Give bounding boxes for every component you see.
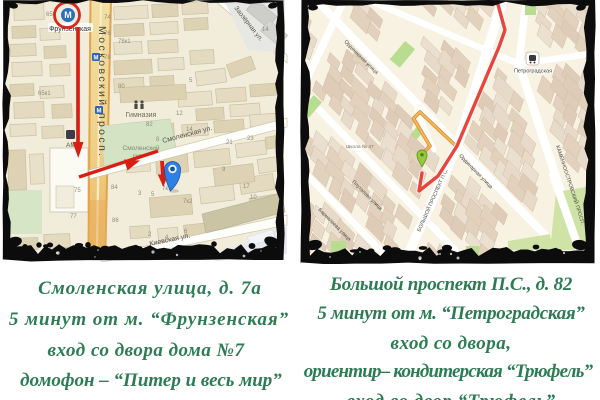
svg-text:86: 86: [112, 218, 119, 224]
svg-text:Московский просп.: Московский просп.: [96, 26, 108, 158]
svg-text:7к2: 7к2: [183, 199, 193, 205]
svg-text:12: 12: [176, 111, 183, 117]
svg-text:10: 10: [250, 195, 257, 201]
svg-text:Гимназия: Гимназия: [126, 112, 157, 119]
svg-text:74: 74: [104, 15, 111, 21]
svg-text:76: 76: [104, 31, 111, 37]
svg-text:Школа № 47: Школа № 47: [346, 144, 374, 150]
svg-text:80: 80: [118, 84, 125, 90]
svg-text:65к1: 65к1: [38, 91, 51, 97]
svg-text:78: 78: [104, 55, 111, 61]
svg-text:82: 82: [146, 122, 153, 128]
svg-text:84: 84: [111, 185, 118, 191]
svg-text:77: 77: [70, 214, 77, 220]
svg-text:14: 14: [186, 127, 193, 133]
svg-text:17: 17: [243, 184, 250, 190]
svg-text:21: 21: [226, 140, 233, 146]
svg-text:М: М: [64, 10, 72, 20]
svg-text:23: 23: [247, 136, 254, 142]
svg-text:78к1: 78к1: [118, 39, 131, 45]
svg-text:75: 75: [74, 188, 81, 194]
svg-text:Петроградская: Петроградская: [514, 69, 552, 75]
svg-text:14: 14: [262, 27, 269, 33]
